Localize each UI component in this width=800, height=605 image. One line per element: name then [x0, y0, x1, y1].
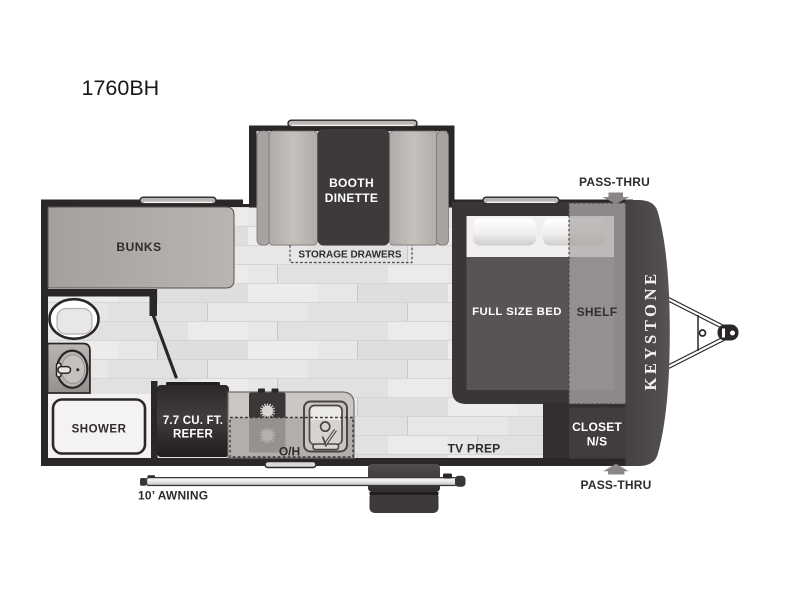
svg-text:PASS-THRU: PASS-THRU: [579, 175, 650, 189]
svg-text:BOOTH: BOOTH: [329, 176, 374, 190]
svg-text:FULL SIZE BED: FULL SIZE BED: [472, 306, 562, 318]
svg-text:1760BH: 1760BH: [82, 76, 160, 100]
svg-text:TV PREP: TV PREP: [448, 442, 501, 456]
svg-text:BUNKS: BUNKS: [116, 240, 161, 254]
svg-text:KEYSTONE: KEYSTONE: [641, 270, 660, 390]
svg-text:10’ AWNING: 10’ AWNING: [138, 489, 208, 503]
svg-text:STORAGE DRAWERS: STORAGE DRAWERS: [298, 250, 401, 261]
svg-text:DINETTE: DINETTE: [325, 191, 378, 205]
svg-text:SHELF: SHELF: [577, 305, 618, 319]
svg-text:CLOSET: CLOSET: [572, 420, 622, 434]
svg-text:PASS-THRU: PASS-THRU: [581, 478, 652, 492]
svg-text:REFER: REFER: [173, 429, 213, 441]
svg-text:7.7 CU. FT.: 7.7 CU. FT.: [163, 415, 223, 427]
svg-text:N/S: N/S: [587, 435, 608, 449]
svg-text:O/H: O/H: [279, 445, 300, 459]
svg-text:SHOWER: SHOWER: [72, 424, 127, 436]
